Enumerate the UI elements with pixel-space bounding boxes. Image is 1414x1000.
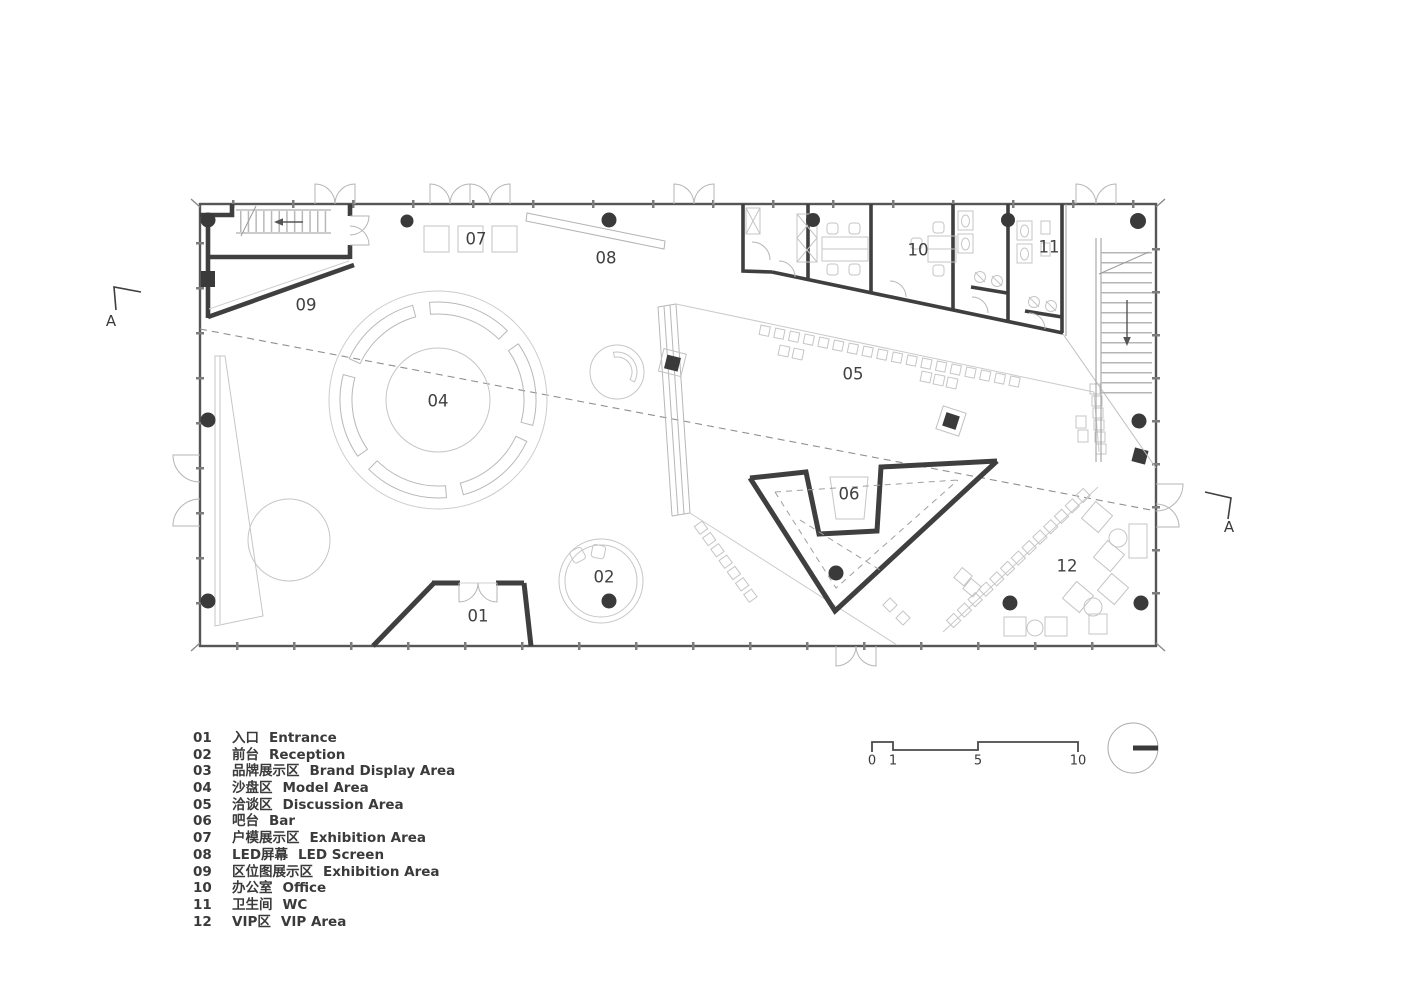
seat-pair-bottom <box>883 598 910 625</box>
legend-num: 05 <box>193 797 232 813</box>
legend-zh: VIP区 <box>232 910 271 930</box>
legend-en: Office <box>283 880 327 896</box>
scale-bar <box>872 742 1078 752</box>
legend-num: 01 <box>193 730 232 746</box>
legend-en: VIP Area <box>281 914 346 930</box>
legend-num: 10 <box>193 880 232 896</box>
legend-num: 11 <box>193 897 232 913</box>
office-furniture <box>746 208 956 276</box>
seat-row-diagonal-left <box>694 521 757 602</box>
legend-en: WC <box>283 897 308 913</box>
legend-en: Brand Display Area <box>310 763 456 779</box>
legend-en: Model Area <box>283 780 369 796</box>
bar-counter <box>750 461 997 611</box>
room-09-inner-line <box>209 261 349 309</box>
exhibit-marker-1 <box>658 349 686 377</box>
legend-row-07: 07 户模展示区 Exhibition Area <box>193 826 455 843</box>
legend-num: 04 <box>193 780 232 796</box>
vip-furniture <box>954 502 1147 636</box>
legend-en: Exhibition Area <box>310 830 427 846</box>
legend-num: 08 <box>193 847 232 863</box>
exhibit-marker-3 <box>1131 447 1148 464</box>
reception-area <box>559 539 643 623</box>
legend-num: 02 <box>193 747 232 763</box>
legend-row-01: 01 入口 Entrance <box>193 726 455 743</box>
legend: 01 入口 Entrance 02 前台 Reception 03 品牌展示区 … <box>193 726 455 926</box>
legend-en: Exhibition Area <box>323 864 440 880</box>
office-block-walls <box>743 204 1063 333</box>
floor-plan-page: 01 02 04 05 06 07 08 09 10 11 12 A A 0 1… <box>0 0 1414 1000</box>
legend-en: Discussion Area <box>283 797 404 813</box>
discussion-seats-row-a <box>759 325 1020 387</box>
model-area-circle <box>329 291 547 509</box>
vip-seat-row <box>943 487 1098 632</box>
stair-top-left <box>236 206 331 236</box>
legend-en: Entrance <box>269 730 337 746</box>
north-indicator-icon <box>1108 723 1158 773</box>
legend-num: 06 <box>193 813 232 829</box>
legend-row-12: 12 VIP区 VIP Area <box>193 910 455 927</box>
wall-clamp <box>201 271 215 287</box>
round-display <box>590 345 644 399</box>
louver-partition <box>658 304 690 516</box>
discussion-seats-misc <box>778 345 1106 454</box>
section-marker-left <box>114 287 141 310</box>
display-squares-07 <box>424 226 517 252</box>
led-screen <box>526 213 665 249</box>
legend-num: 07 <box>193 830 232 846</box>
section-marker-right <box>1205 492 1231 519</box>
exhibit-marker-2 <box>936 406 966 436</box>
legend-num: 12 <box>193 914 232 930</box>
entrance-vestibule <box>373 583 531 646</box>
legend-num: 09 <box>193 864 232 880</box>
door-arcs-09 <box>350 216 369 245</box>
legend-num: 03 <box>193 763 232 779</box>
brand-display-wedge <box>215 356 330 626</box>
